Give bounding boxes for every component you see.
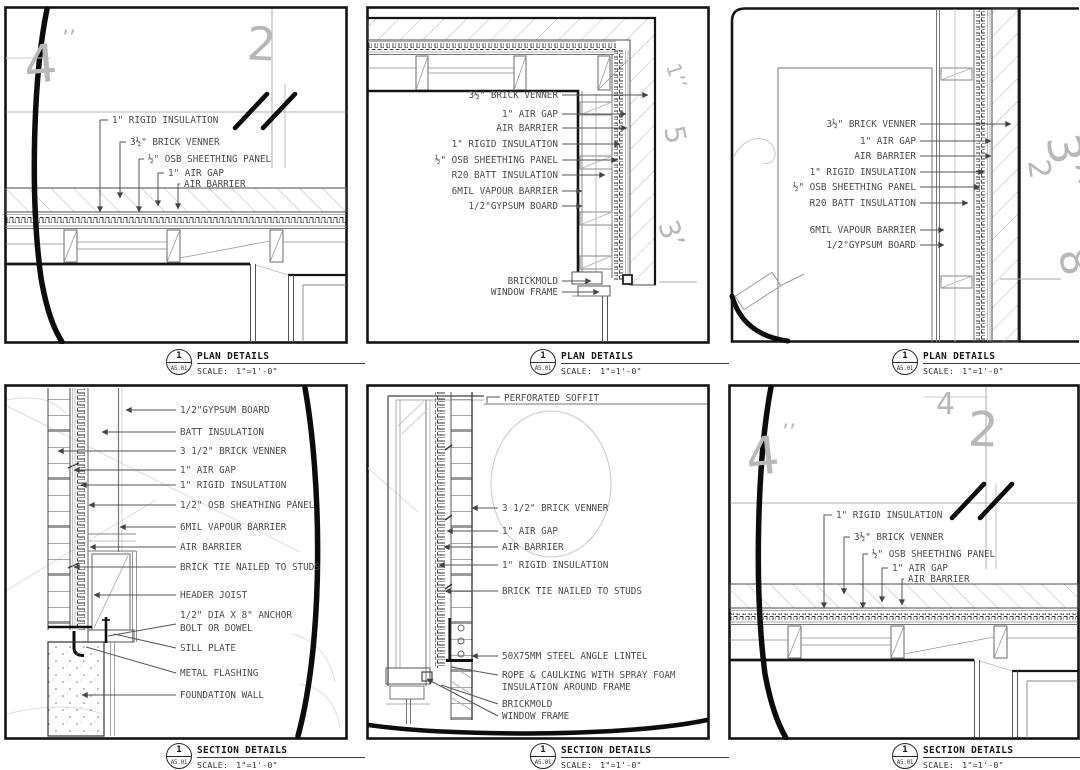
panel-plan-detail-3: 3’’ 2 8’’ 3½" BRICK VENNER 1" AIR GAP AI… (728, 6, 1080, 344)
callout-label: 3½" BRICK VENNER (854, 532, 944, 543)
window-frame-detail (572, 272, 632, 342)
detail-scale: SCALE:1"=1'-0" (197, 760, 365, 770)
callout-label: 1" AIR GAP (502, 109, 558, 120)
freehand-notes: 4 ’’ 2 (6, 16, 278, 96)
panel-plan-detail-1: 4 ’’ 2 1" RIGID INSULATION 3½" BRICK VEN… (4, 6, 348, 344)
detail-sheet-number: A5.01 (893, 363, 917, 374)
callout-label: ½" OSB SHEETHING PANEL (872, 549, 996, 560)
callout-label: AIR BARRIER (180, 542, 242, 553)
callout-label: BRICKMOLD (502, 699, 553, 710)
detail-sheet-number: A5.01 (531, 757, 555, 768)
detail-sheet-number: A5.01 (893, 757, 917, 768)
callout-label: 1" RIGID INSULATION (112, 115, 218, 126)
detail-number: 1 (531, 744, 555, 757)
callout-label: R20 BATT INSULATION (452, 170, 558, 181)
callout-label: WINDOW FRAME (491, 287, 558, 298)
freehand-note: ’’ (62, 27, 76, 52)
callout-label: ½" OSB SHEETHING PANEL (793, 182, 917, 193)
callout-label: 1" RIGID INSULATION (836, 510, 942, 521)
wall-assembly (6, 188, 346, 342)
detail-title: PLAN DETAILS (197, 351, 365, 364)
pencil-sketch-lines (368, 411, 611, 557)
wall-assembly (388, 392, 484, 720)
detail-callout-bubble: 1 A5.01 (166, 743, 192, 769)
detail-number: 1 (167, 350, 191, 363)
callout-label: HEADER JOIST (180, 590, 248, 601)
callout-label: 1" AIR GAP (860, 136, 916, 147)
freehand-notes: 1’’ 5 3’ (651, 60, 697, 282)
freehand-note: ’’ (782, 421, 796, 446)
freehand-note: 2 (967, 401, 999, 458)
callout-label: AIR BARRIER (496, 123, 558, 134)
freehand-notes: 4 ’’ 4 2 (743, 387, 999, 489)
title-block-section-1: 1 A5.01 SECTION DETAILS SCALE:1"=1'-0" (166, 743, 365, 769)
detail-scale: SCALE:1"=1'-0" (561, 366, 729, 376)
freehand-note: 1’’ (661, 60, 692, 92)
callout-label: 1" RIGID INSULATION (180, 480, 286, 491)
wall-assembly (368, 18, 655, 285)
callout-label: AIR BARRIER (908, 574, 970, 585)
callout-label: BRICK TIE NAILED TO STUDS (502, 586, 642, 597)
callout-label: BRICKMOLD (508, 276, 559, 287)
callout-label: PERFORATED SOFFIT (504, 393, 600, 404)
title-block-plan-2: 1 A5.01 PLAN DETAILS SCALE:1"=1'-0" (530, 349, 729, 375)
detail-sheet-number: A5.01 (167, 363, 191, 374)
callout-label: 1" RIGID INSULATION (502, 560, 608, 571)
callout-label: BATT INSULATION (180, 427, 264, 438)
callout-label: 1/2" DIA X 8" ANCHOR (180, 610, 292, 621)
callout-label: 1/2"GYPSUM BOARD (826, 240, 916, 251)
callout-label: AIR BARRIER (854, 151, 916, 162)
wall-assembly (48, 388, 122, 630)
callout-label: 1" RIGID INSULATION (810, 167, 916, 178)
callout-label: ½" OSB SHEETHING PANEL (435, 155, 559, 166)
callout-label: WINDOW FRAME (502, 711, 569, 722)
wall-assembly (730, 584, 1078, 738)
callout-label: ½" OSB SHEETHING PANEL (148, 154, 272, 165)
callout-label: 50X75MM STEEL ANGLE LINTEL (502, 651, 648, 662)
detail-scale: SCALE:1"=1'-0" (923, 760, 1080, 770)
detail-scale: SCALE:1"=1'-0" (561, 760, 729, 770)
callout-label: AIR BARRIER (502, 542, 564, 553)
title-block-plan-1: 1 A5.01 PLAN DETAILS SCALE:1"=1'-0" (166, 349, 365, 375)
callout-label: ROPE & CAULKING WITH SPRAY FOAM (502, 670, 676, 681)
detail-sheet-number: A5.01 (167, 757, 191, 768)
detail-scale: SCALE:1"=1'-0" (923, 366, 1080, 376)
callout-label: 3 1/2" BRICK VENNER (502, 503, 609, 514)
detail-title: SECTION DETAILS (197, 745, 365, 758)
detail-number: 1 (167, 744, 191, 757)
callout-label: 1/2" OSB SHEATHING PANEL (180, 500, 315, 511)
callout-label: 1" AIR GAP (180, 465, 236, 476)
panel-section-detail-3: 4 ’’ 4 2 1" RIGID INSULATION 3½" BRICK V… (728, 384, 1080, 740)
freehand-note: 4 (743, 425, 782, 488)
freehand-note: 2 (246, 16, 278, 71)
title-block-section-2: 1 A5.01 SECTION DETAILS SCALE:1"=1'-0" (530, 743, 729, 769)
detail-callout-bubble: 1 A5.01 (892, 349, 918, 375)
callout-label: 1" AIR GAP (168, 168, 224, 179)
detail-number: 1 (893, 744, 917, 757)
callout-label: R20 BATT INSULATION (810, 198, 916, 209)
callout-label: 3½" BRICK VENNER (468, 90, 558, 101)
callout-label: 3 1/2" BRICK VENNER (180, 446, 287, 457)
break-marks (952, 484, 1012, 518)
title-block-section-3: 1 A5.01 SECTION DETAILS SCALE:1"=1'-0" (892, 743, 1080, 769)
freehand-note: 3’ (651, 216, 691, 252)
detail-callout-bubble: 1 A5.01 (530, 349, 556, 375)
callout-label: 3½" BRICK VENNER (130, 137, 220, 148)
matchline (369, 720, 707, 733)
callout-label: 6MIL VAPOUR BARRIER (180, 522, 287, 533)
callout-label: 3½" BRICK VENNER (826, 119, 916, 130)
detail-callout-bubble: 1 A5.01 (892, 743, 918, 769)
callout-label: BRICK TIE NAILED TO STUDS (180, 562, 320, 573)
callout-label: SILL PLATE (180, 643, 236, 654)
wall-assembly (937, 9, 1020, 342)
callout-label: 1" RIGID INSULATION (452, 139, 558, 150)
callout-label: 6MIL VAPOUR BARRIER (810, 225, 917, 236)
detail-scale: SCALE:1"=1'-0" (197, 366, 365, 376)
freehand-note: 4 (22, 34, 60, 97)
title-block-plan-3: 1 A5.01 PLAN DETAILS SCALE:1"=1'-0" (892, 349, 1080, 375)
panel-section-detail-1: 1/2"GYPSUM BOARD BATT INSULATION 3 1/2" … (4, 384, 348, 740)
callout-label: 1" AIR GAP (502, 526, 558, 537)
detail-sheet-number: A5.01 (531, 363, 555, 374)
detail-callout-bubble: 1 A5.01 (166, 349, 192, 375)
callout-label: 6MIL VAPOUR BARRIER (452, 186, 559, 197)
callout-label: METAL FLASHING (180, 668, 259, 679)
panel-section-detail-2: PERFORATED SOFFIT 3 1/2" BRICK VENNER 1"… (366, 384, 710, 740)
detail-title: SECTION DETAILS (923, 745, 1080, 758)
detail-title: SECTION DETAILS (561, 745, 729, 758)
callout-label: 1" AIR GAP (892, 563, 948, 574)
callout-label: AIR BARRIER (184, 179, 246, 190)
callout-label: 1/2"GYPSUM BOARD (468, 201, 558, 212)
detail-callout-bubble: 1 A5.01 (530, 743, 556, 769)
panel-plan-detail-2: 1’’ 5 3’ 3½" BRICK VENNER 1" AIR GAP AIR… (366, 6, 710, 344)
detail-title: PLAN DETAILS (561, 351, 729, 364)
callout-label: FOUNDATION WALL (180, 690, 264, 701)
freehand-note: 8’’ (1048, 243, 1080, 307)
freehand-note: 4 (936, 387, 955, 422)
drawing-sheet: 4 ’’ 2 1" RIGID INSULATION 3½" BRICK VEN… (0, 0, 1080, 766)
detail-number: 1 (893, 350, 917, 363)
callout-label: 1/2"GYPSUM BOARD (180, 405, 270, 416)
freehand-note: 5 (657, 123, 693, 147)
detail-title: PLAN DETAILS (923, 351, 1080, 364)
detail-number: 1 (531, 350, 555, 363)
break-marks (235, 94, 295, 128)
callout-label: INSULATION AROUND FRAME (502, 682, 631, 693)
callout-label: BOLT OR DOWEL (180, 623, 253, 634)
